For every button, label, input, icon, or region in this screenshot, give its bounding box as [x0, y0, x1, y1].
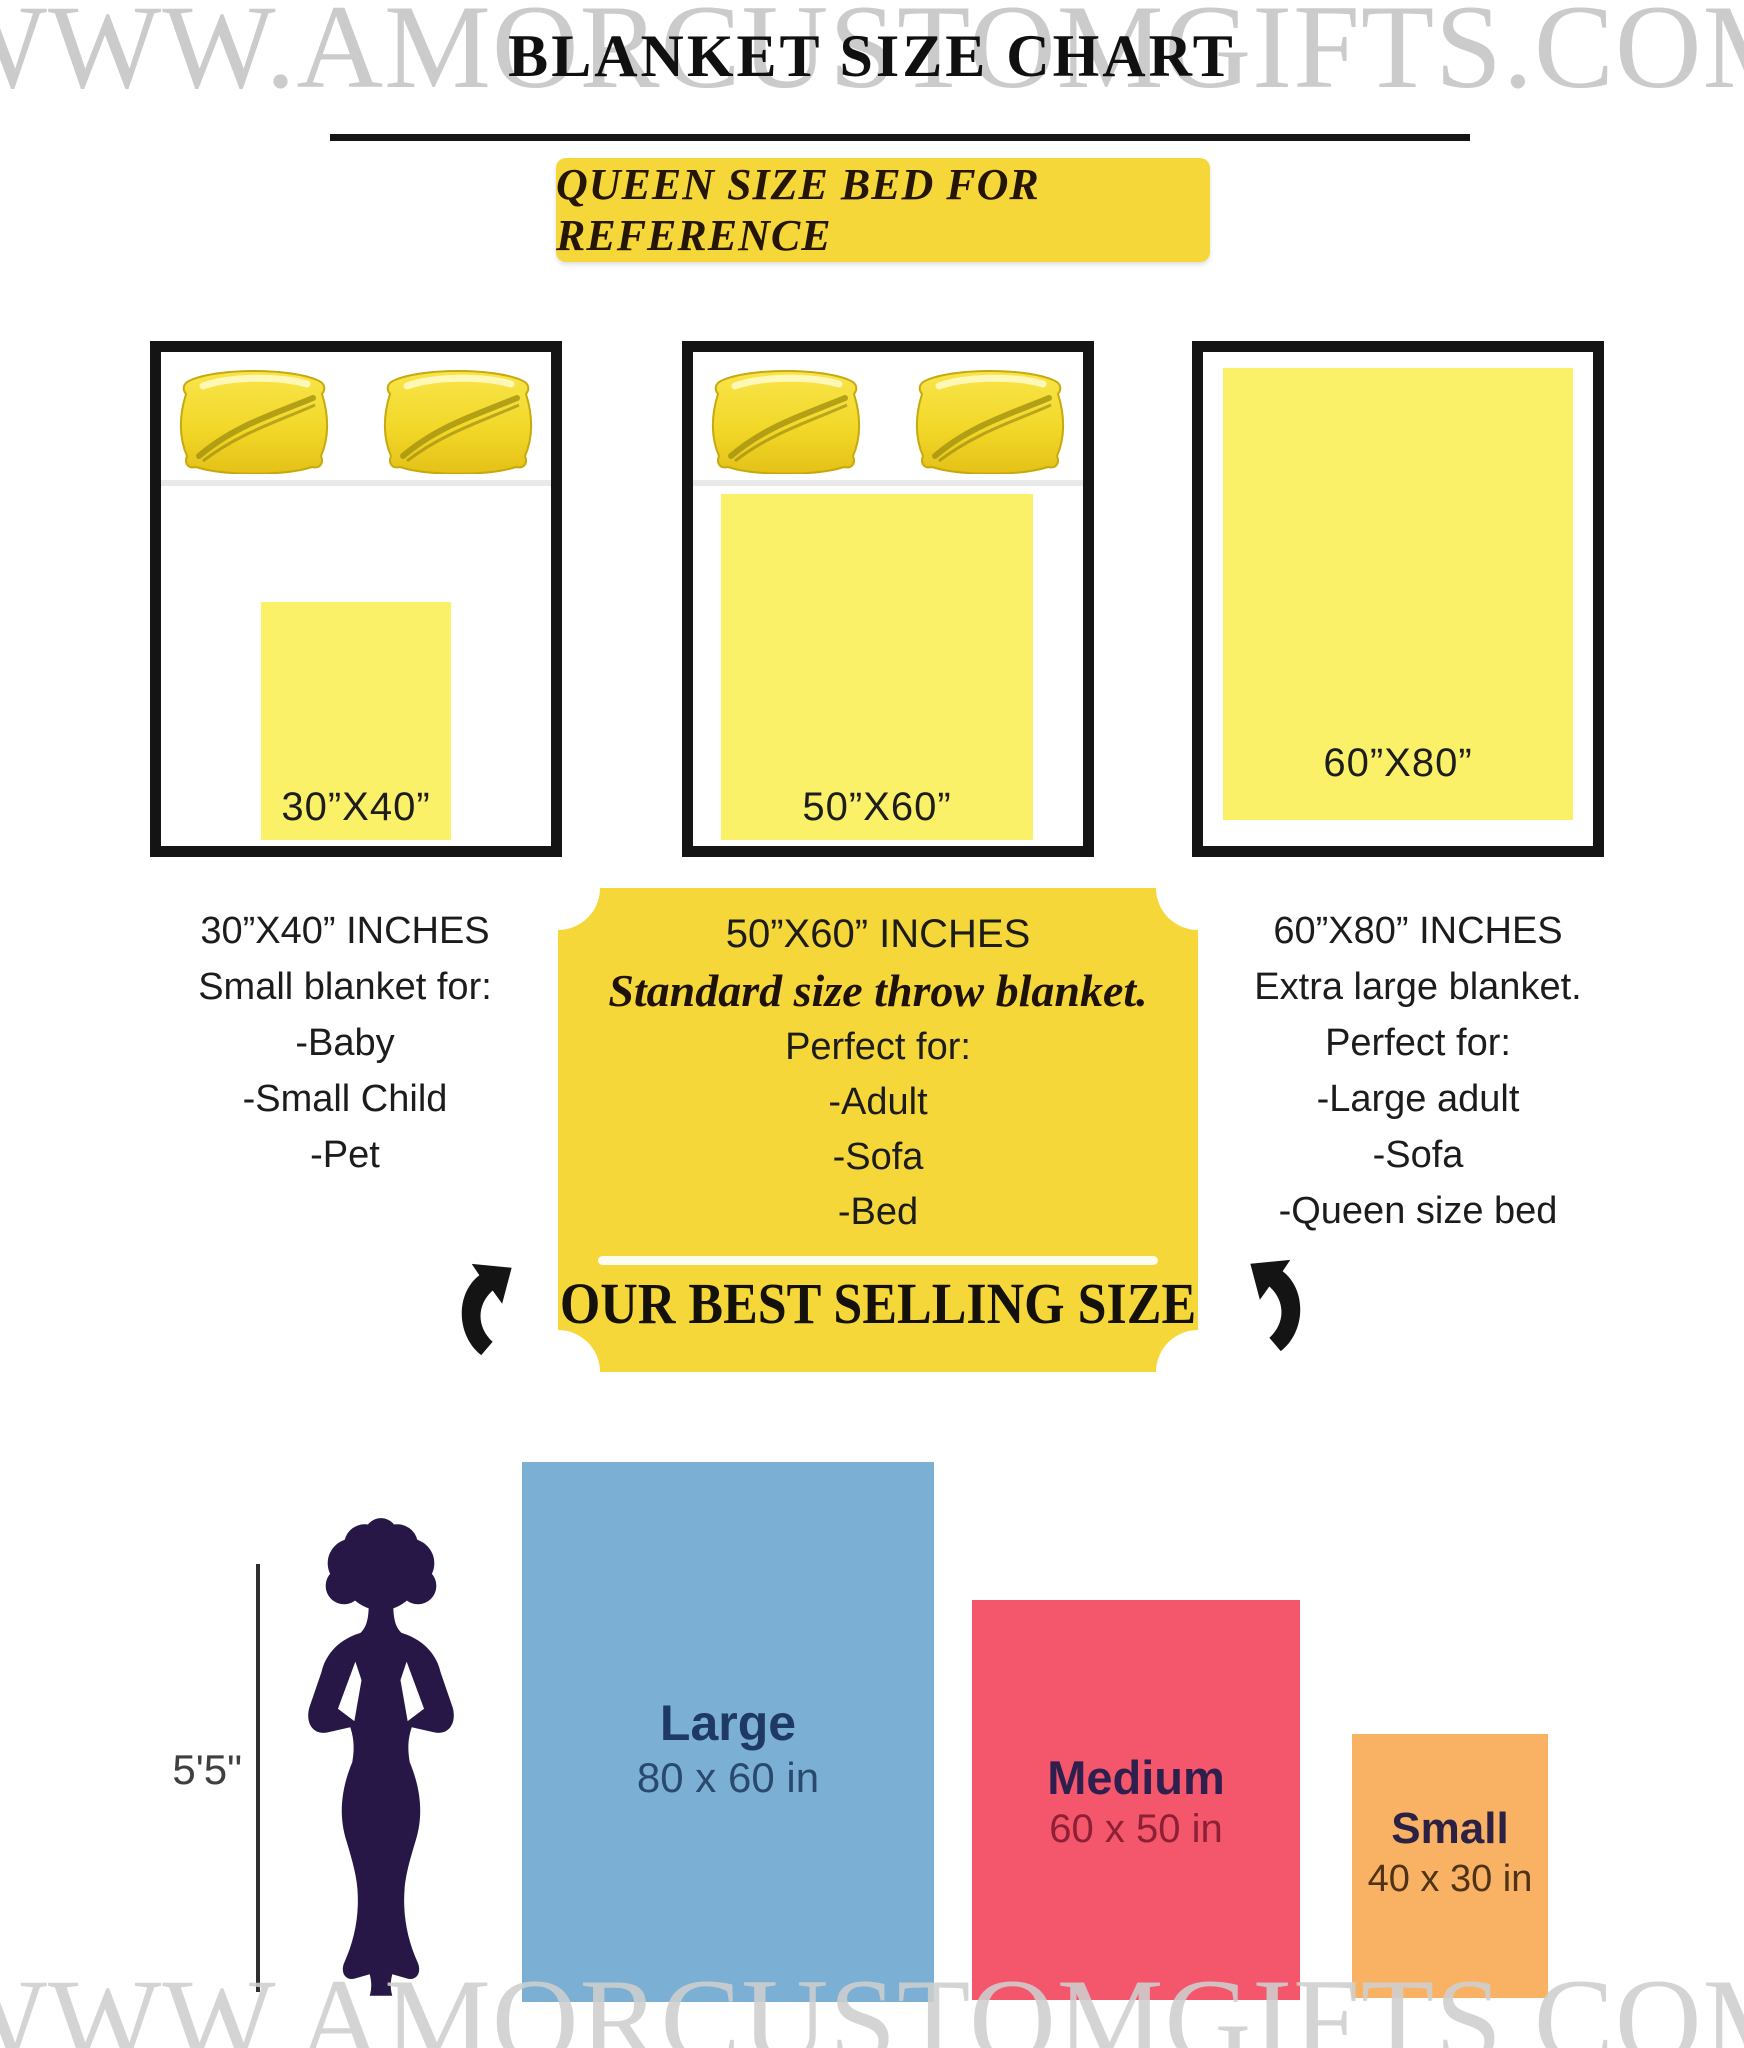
blanket-size-chart-infographic: WWW.AMORCUSTOMGIFTS.COM WWW.AMORCUSTOMGI…	[0, 0, 1744, 2048]
bar-dimensions: 80 x 60 in	[522, 1754, 934, 1802]
size-description-60x80: 60”X80” INCHES Extra large blanket. Perf…	[1178, 903, 1658, 1239]
size-item: -Small Child	[120, 1071, 570, 1127]
size-item: -Sofa	[1178, 1127, 1658, 1183]
bar-name: Large	[522, 1694, 934, 1752]
best-selling-content: 50”X60” INCHES Standard size throw blank…	[558, 888, 1198, 1372]
size-title: 30”X40” INCHES	[120, 903, 570, 959]
size-title: 60”X80” INCHES	[1178, 903, 1658, 959]
size-subtitle: Small blanket for:	[120, 959, 570, 1015]
woman-silhouette	[258, 1518, 504, 2000]
bottom-watermark: WWW.AMORCUSTOMGIFTS.COM	[0, 1952, 1744, 2048]
pillow-icon	[913, 364, 1067, 474]
bed-diagram-60x80: 60”X80”	[1192, 341, 1604, 857]
curved-arrow-icon	[450, 1262, 560, 1357]
divider-line	[598, 1256, 1158, 1265]
size-item: -Queen size bed	[1178, 1183, 1658, 1239]
best-selling-label: OUR BEST SELLING SIZE	[558, 1271, 1198, 1337]
pillow-icon	[177, 364, 331, 474]
size-item: -Sofa	[558, 1130, 1198, 1185]
size-item: -Adult	[558, 1075, 1198, 1130]
size-description-30x40: 30”X40” INCHES Small blanket for: -Baby …	[120, 903, 570, 1183]
size-lead: Perfect for:	[558, 1020, 1198, 1075]
page-title: BLANKET SIZE CHART	[0, 22, 1744, 91]
pillow-row	[161, 364, 551, 474]
best-selling-callout: 50”X60” INCHES Standard size throw blank…	[558, 888, 1198, 1372]
size-item: -Bed	[558, 1185, 1198, 1240]
bar-dimensions: 40 x 30 in	[1352, 1858, 1548, 1901]
bar-dimensions: 60 x 50 in	[972, 1807, 1300, 1852]
pillow-row	[693, 364, 1083, 474]
size-lead: Perfect for:	[1178, 1015, 1658, 1071]
size-item: -Large adult	[1178, 1071, 1658, 1127]
blanket-size-label: 30”X40”	[281, 785, 430, 840]
reference-banner-label: QUEEN SIZE BED FOR REFERENCE	[556, 159, 1210, 261]
size-subtitle: Extra large blanket.	[1178, 959, 1658, 1015]
size-bar-medium: Medium 60 x 50 in	[972, 1600, 1300, 2000]
blanket-60x80: 60”X80”	[1223, 368, 1573, 820]
size-item: -Baby	[120, 1015, 570, 1071]
blanket-30x40: 30”X40”	[261, 602, 451, 840]
blanket-size-label: 60”X80”	[1323, 741, 1472, 820]
size-bar-large: Large 80 x 60 in	[522, 1462, 934, 2002]
size-item: -Pet	[120, 1127, 570, 1183]
size-title: 50”X60” INCHES	[558, 906, 1198, 962]
pillow-icon	[709, 364, 863, 474]
blanket-size-label: 50”X60”	[802, 785, 951, 840]
sheet-line	[693, 480, 1083, 486]
title-underline	[330, 134, 1470, 141]
sheet-line	[161, 480, 551, 486]
size-subtitle: Standard size throw blanket.	[558, 962, 1198, 1020]
bar-name: Small	[1352, 1804, 1548, 1854]
bar-name: Medium	[972, 1750, 1300, 1805]
height-label: 5'5"	[134, 1746, 242, 1794]
curved-arrow-icon	[1202, 1258, 1312, 1353]
bed-diagram-50x60: 50”X60”	[682, 341, 1094, 857]
pillow-icon	[381, 364, 535, 474]
bed-diagram-30x40: 30”X40”	[150, 341, 562, 857]
reference-banner: QUEEN SIZE BED FOR REFERENCE	[556, 158, 1210, 262]
blanket-50x60: 50”X60”	[721, 494, 1033, 840]
